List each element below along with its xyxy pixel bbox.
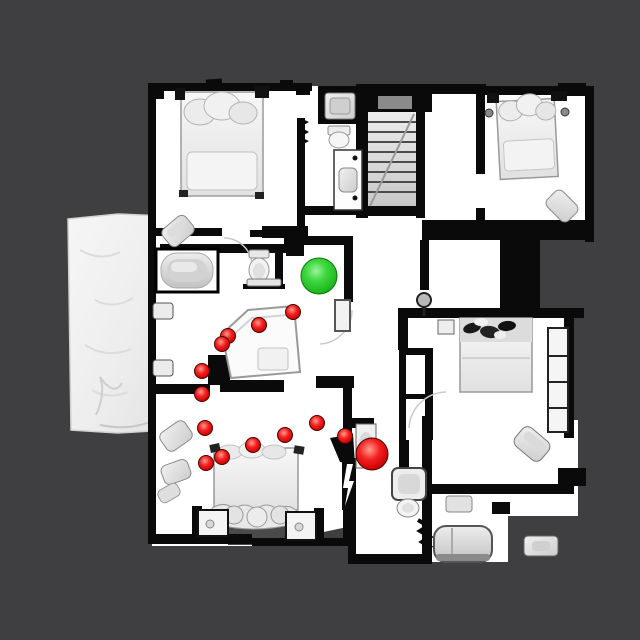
red-waypoint-dot bbox=[195, 364, 210, 379]
couch-bottom-right bbox=[434, 526, 492, 562]
dresser-bottom-right bbox=[524, 536, 558, 556]
floorplan-svg bbox=[0, 0, 640, 640]
closet-right bbox=[548, 328, 568, 432]
red-agent-sphere bbox=[356, 438, 388, 470]
red-waypoint-dot bbox=[215, 337, 230, 352]
red-waypoint-dot bbox=[195, 387, 210, 402]
red-waypoint-dot bbox=[198, 421, 213, 436]
bathtub bbox=[156, 249, 218, 292]
red-waypoint-dot bbox=[199, 456, 214, 471]
red-waypoint-dot bbox=[338, 429, 353, 444]
red-waypoint-dot bbox=[286, 305, 301, 320]
nightstand-left bbox=[192, 506, 228, 536]
red-waypoint-dot bbox=[215, 450, 230, 465]
topdown-scan-map bbox=[0, 0, 640, 640]
red-waypoint-dot bbox=[310, 416, 325, 431]
bed-top-right bbox=[496, 92, 559, 179]
red-waypoint-dot bbox=[246, 438, 261, 453]
green-goal-sphere bbox=[301, 258, 337, 294]
toilet-top bbox=[329, 132, 349, 148]
staircase bbox=[368, 112, 416, 206]
red-waypoint-dot bbox=[278, 428, 293, 443]
red-waypoint-dot bbox=[252, 318, 267, 333]
bed-top-left bbox=[175, 86, 269, 199]
nightstand-right bbox=[286, 508, 324, 540]
